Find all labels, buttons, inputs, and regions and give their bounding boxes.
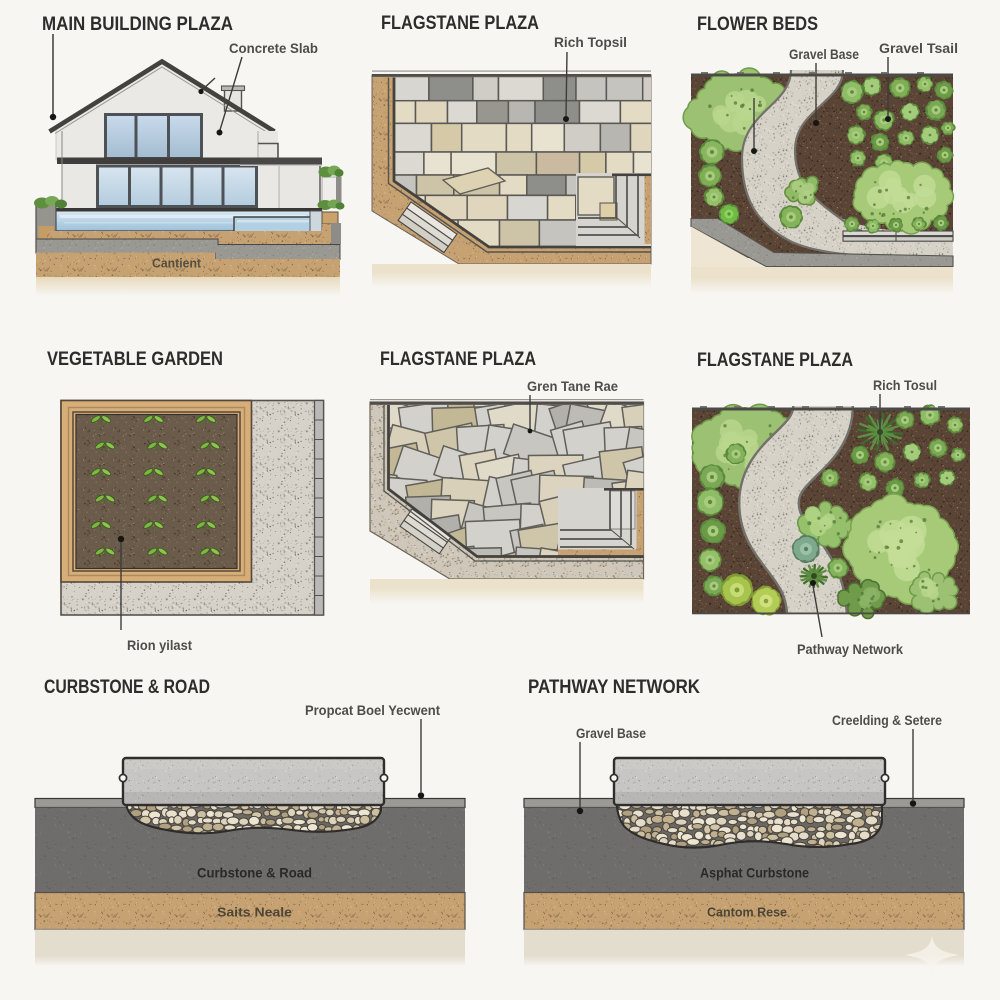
svg-text:Creelding & Setere: Creelding & Setere: [832, 712, 942, 728]
svg-text:Concrete Slab: Concrete Slab: [229, 40, 318, 56]
svg-text:Rich Tosul: Rich Tosul: [873, 377, 937, 393]
svg-text:FLOWER BEDS: FLOWER BEDS: [697, 14, 818, 35]
svg-text:Pathway Network: Pathway Network: [797, 641, 903, 657]
svg-text:Curbstone & Road: Curbstone & Road: [197, 865, 312, 881]
svg-text:Saits Neale: Saits Neale: [217, 906, 292, 920]
svg-text:Propcat Boel Yecwent: Propcat Boel Yecwent: [305, 702, 440, 718]
svg-text:FLAGSTANE PLAZA: FLAGSTANE PLAZA: [380, 349, 536, 370]
svg-text:PATHWAY NETWORK: PATHWAY NETWORK: [528, 677, 700, 698]
svg-text:FLAGSTANE PLAZA: FLAGSTANE PLAZA: [381, 13, 539, 34]
svg-text:CURBSTONE & ROAD: CURBSTONE & ROAD: [44, 677, 210, 698]
svg-text:FLAGSTANE PLAZA: FLAGSTANE PLAZA: [697, 350, 853, 371]
svg-text:MAIN BUILDING PLAZA: MAIN BUILDING PLAZA: [42, 14, 233, 35]
svg-text:Asphat Curbstone: Asphat Curbstone: [700, 865, 809, 881]
svg-text:Gravel Tsail: Gravel Tsail: [879, 40, 958, 56]
svg-text:Gravel Base: Gravel Base: [576, 725, 646, 741]
svg-text:Gravel Base: Gravel Base: [789, 46, 859, 62]
svg-text:Rich Topsil: Rich Topsil: [554, 34, 627, 50]
svg-text:Cantom Rese: Cantom Rese: [707, 906, 787, 920]
svg-text:Gren Tane Rae: Gren Tane Rae: [527, 378, 618, 394]
svg-text:Cantient: Cantient: [152, 257, 202, 271]
svg-text:Rion yilast: Rion yilast: [127, 637, 192, 653]
svg-text:VEGETABLE GARDEN: VEGETABLE GARDEN: [47, 349, 223, 370]
